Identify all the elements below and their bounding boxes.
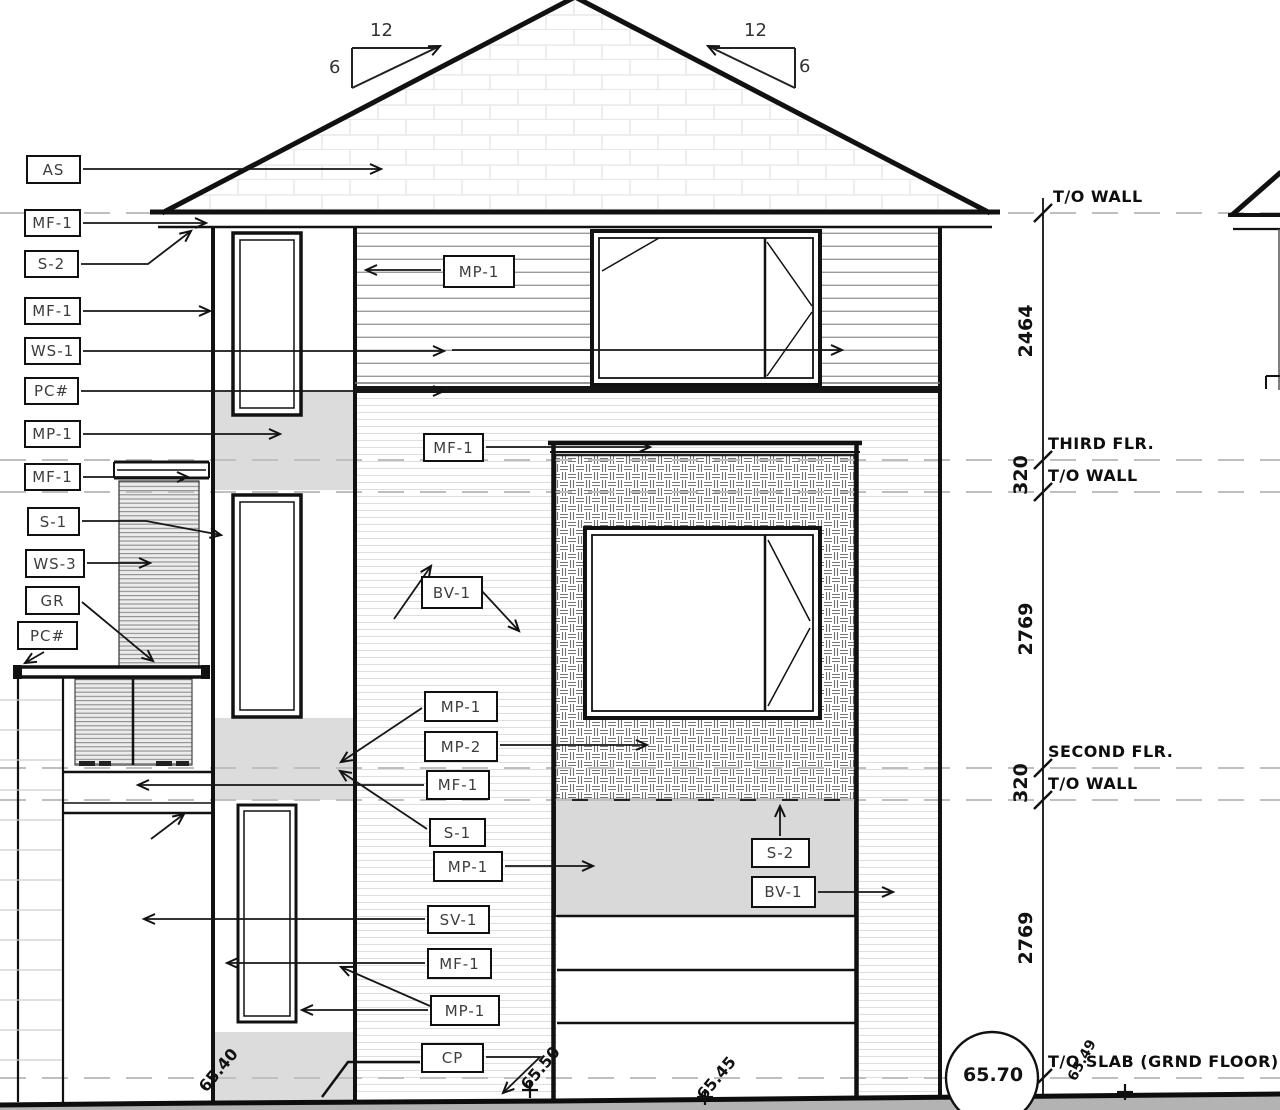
left-label-ws3: WS-3	[25, 549, 85, 578]
callout-mp1-garage: MP-1	[433, 851, 503, 882]
left-label-s1: S-1	[27, 507, 80, 536]
dim-2769-upper: 2769	[1015, 579, 1037, 679]
left-label-mp1: MP-1	[24, 420, 81, 448]
callout-s1: S-1	[429, 818, 486, 847]
callout-mp1-third: MP-1	[443, 255, 515, 288]
level-to-wall-third: T/O WALL	[1048, 466, 1138, 485]
slope-run-left: 12	[370, 20, 393, 41]
dim-320-second: 320	[1010, 733, 1032, 833]
level-third-flr: THIRD FLR.	[1048, 434, 1154, 453]
elevation-drawing: 12 6 12 6 AS MF-1 S-2 MF-1 WS-1 PC# MP-1…	[0, 0, 1280, 1110]
left-label-gr: GR	[25, 586, 80, 615]
third-floor-window	[592, 231, 820, 385]
callout-mf1-second: MF-1	[426, 770, 490, 800]
left-label-mf1-a: MF-1	[24, 209, 81, 237]
level-to-wall-second: T/O WALL	[1048, 774, 1138, 793]
slope-rise-right: 6	[799, 56, 810, 77]
callout-cp: CP	[421, 1043, 484, 1073]
left-label-s2: S-2	[24, 250, 79, 278]
left-label-mf1-c: MF-1	[24, 463, 81, 491]
callout-mp2: MP-2	[424, 731, 498, 762]
callout-mf1-ground: MF-1	[427, 948, 492, 979]
dim-2769-lower: 2769	[1015, 888, 1037, 988]
left-label-mf1-b: MF-1	[24, 297, 81, 325]
level-to-wall-top: T/O WALL	[1053, 187, 1143, 206]
callout-bv1-band: BV-1	[751, 876, 816, 908]
dim-2464: 2464	[1015, 281, 1037, 381]
callout-bv1-brick: BV-1	[421, 576, 483, 609]
left-label-pc-b: PC#	[17, 621, 78, 650]
slope-rise-left: 6	[329, 57, 340, 78]
callout-mp1-ground: MP-1	[430, 995, 500, 1026]
neighbour-roof	[1228, 172, 1280, 390]
callout-mf1-header: MF-1	[423, 433, 484, 462]
level-second-flr: SECOND FLR.	[1048, 742, 1173, 761]
elevation-linework	[0, 0, 1280, 1110]
spot-elev-65-70: 65.70	[963, 1064, 1023, 1086]
left-label-as: AS	[26, 155, 81, 184]
left-label-pc-a: PC#	[24, 377, 79, 405]
dim-320-third: 320	[1010, 425, 1032, 525]
callout-mp1-mid: MP-1	[424, 691, 498, 722]
left-label-ws1: WS-1	[24, 337, 81, 365]
callout-s2-band: S-2	[751, 838, 810, 868]
callout-sv1: SV-1	[427, 905, 490, 934]
slope-run-right: 12	[744, 20, 767, 41]
